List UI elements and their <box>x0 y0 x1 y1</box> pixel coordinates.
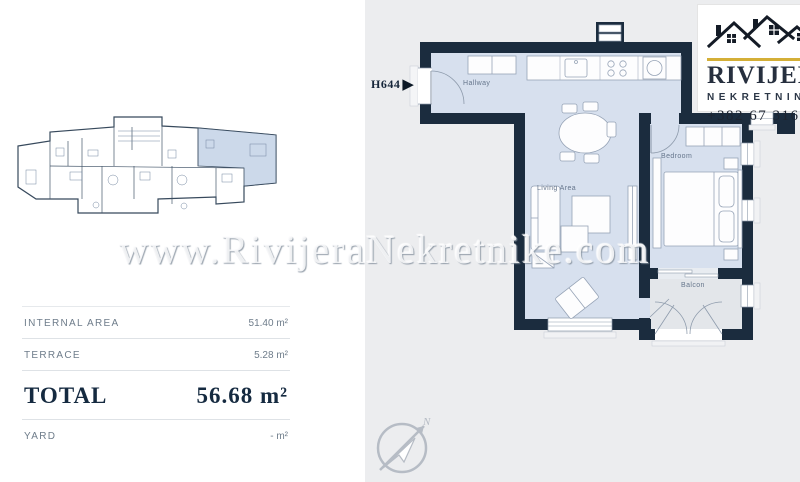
unit-code: H644 <box>371 77 400 92</box>
table-row: INTERNAL AREA 51.40 m² <box>22 307 290 339</box>
row-value: 51.40 m² <box>249 318 288 329</box>
agency-logo: RIVIJERA NEKRETNINE +382 67 316 0 <box>697 4 800 112</box>
row-label: INTERNAL AREA <box>24 318 119 329</box>
unit-arrow-icon: ▶ <box>402 77 414 92</box>
agency-subtitle: NEKRETNINE <box>707 92 800 103</box>
room-label-living-area: Living Area <box>537 185 576 192</box>
row-value: 56.68 m² <box>196 383 288 409</box>
row-value: - m² <box>270 431 288 442</box>
vent-unit <box>596 22 624 44</box>
agency-phone: +382 67 316 0 <box>707 108 800 125</box>
room-label-hallway: Hallway <box>463 80 490 87</box>
table-row: TERRACE 5.28 m² <box>22 339 290 371</box>
row-label: YARD <box>24 431 56 442</box>
row-value: 5.28 m² <box>254 350 288 361</box>
table-row: YARD - m² <box>22 420 290 451</box>
room-label-balcony: Balcon <box>681 282 705 289</box>
row-label: TERRACE <box>24 350 81 361</box>
north-arrow-icon <box>380 426 424 470</box>
building-overview-plan <box>12 110 284 238</box>
compass-icon: N <box>366 411 444 481</box>
gold-divider <box>707 58 800 61</box>
agency-name: RIVIJERA <box>707 63 800 89</box>
area-summary-table: INTERNAL AREA 51.40 m² TERRACE 5.28 m² T… <box>22 306 290 451</box>
houses-roofline-icon <box>707 10 800 52</box>
unit-code-tag: H644 ▶ <box>371 77 414 92</box>
room-label-bedroom: Bedroom <box>661 153 692 160</box>
north-label: N <box>422 416 431 428</box>
table-row-total: TOTAL 56.68 m² <box>22 371 290 420</box>
row-label: TOTAL <box>24 383 107 409</box>
